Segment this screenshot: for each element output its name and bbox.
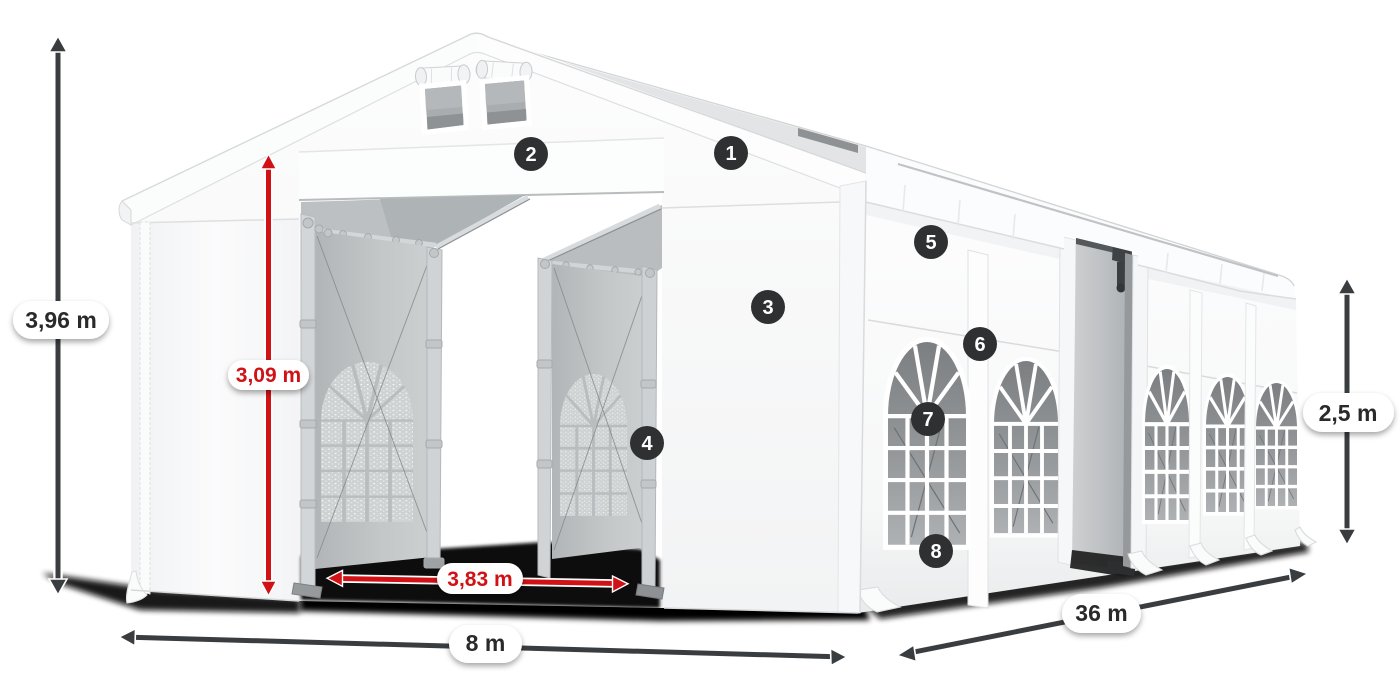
svg-text:8: 8 (930, 541, 941, 563)
svg-text:1: 1 (725, 143, 736, 165)
svg-text:4: 4 (641, 433, 653, 455)
svg-text:2,5 m: 2,5 m (1319, 400, 1378, 426)
svg-text:7: 7 (922, 409, 933, 431)
svg-text:3,09 m: 3,09 m (236, 364, 301, 387)
svg-text:2: 2 (525, 144, 536, 166)
svg-text:5: 5 (925, 232, 936, 254)
svg-text:3,83 m: 3,83 m (447, 568, 512, 591)
svg-text:36 m: 36 m (1075, 600, 1127, 626)
svg-text:6: 6 (974, 334, 985, 356)
svg-text:8 m: 8 m (466, 630, 506, 656)
svg-text:3: 3 (762, 297, 773, 319)
svg-text:3,96 m: 3,96 m (25, 307, 97, 333)
